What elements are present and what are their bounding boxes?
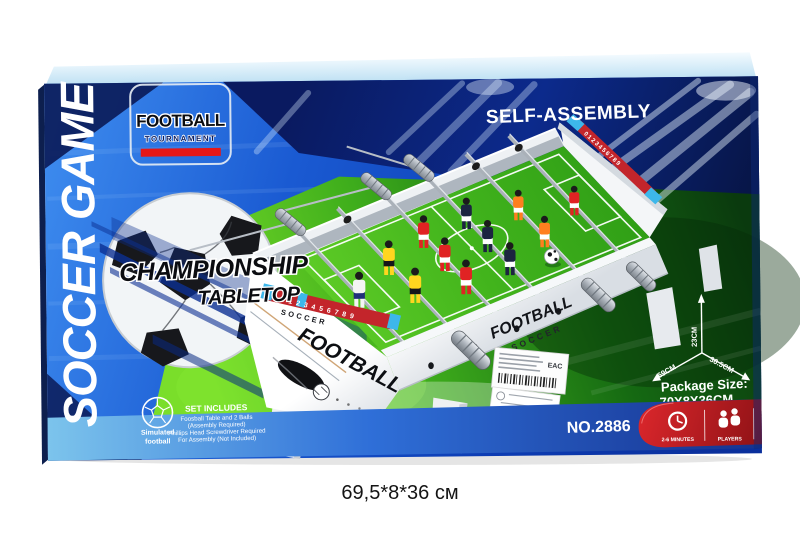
tagline-line2: TABLETOP [197, 283, 301, 310]
product-box: 0123456789 [38, 52, 800, 465]
dim-height-label: 23CM [690, 327, 699, 347]
minutes-label: 2-6 MINUTES [662, 437, 695, 443]
sticker-barcode: EAC [491, 347, 568, 394]
set-includes-title: SET INCLUDES [185, 402, 248, 414]
players-count: 2 [727, 422, 732, 432]
box-front-face: 0123456789 [44, 73, 800, 462]
badge-red-bar [141, 148, 221, 157]
players-label: PLAYERS [718, 436, 743, 442]
badge-subtitle: TOURNAMENT [145, 134, 217, 144]
box-art-svg: 0123456789 [0, 0, 800, 537]
side-title-vertical: SOCCER GAME [50, 80, 107, 427]
badge-title: FOOTBALL [136, 111, 225, 131]
caption-dimensions: 69,5*8*36 см [341, 482, 458, 504]
model-number: NO.2886 [566, 418, 631, 437]
simulated-line2: football [145, 438, 170, 445]
info-badge: 2-6 MINUTES 2 PLAYERS [638, 399, 762, 447]
eac-mark: EAC [547, 362, 562, 370]
product-photo: 0123456789 [0, 0, 800, 537]
